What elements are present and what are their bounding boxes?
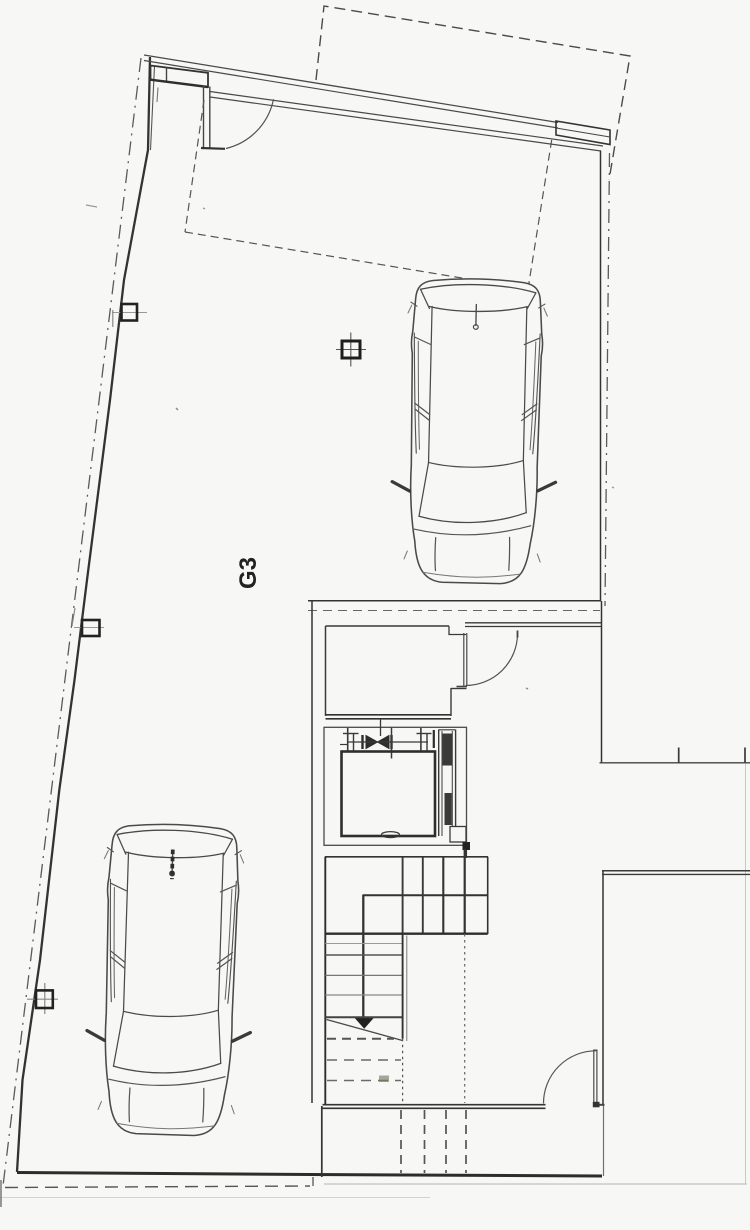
svg-text:G3: G3 bbox=[235, 557, 262, 589]
